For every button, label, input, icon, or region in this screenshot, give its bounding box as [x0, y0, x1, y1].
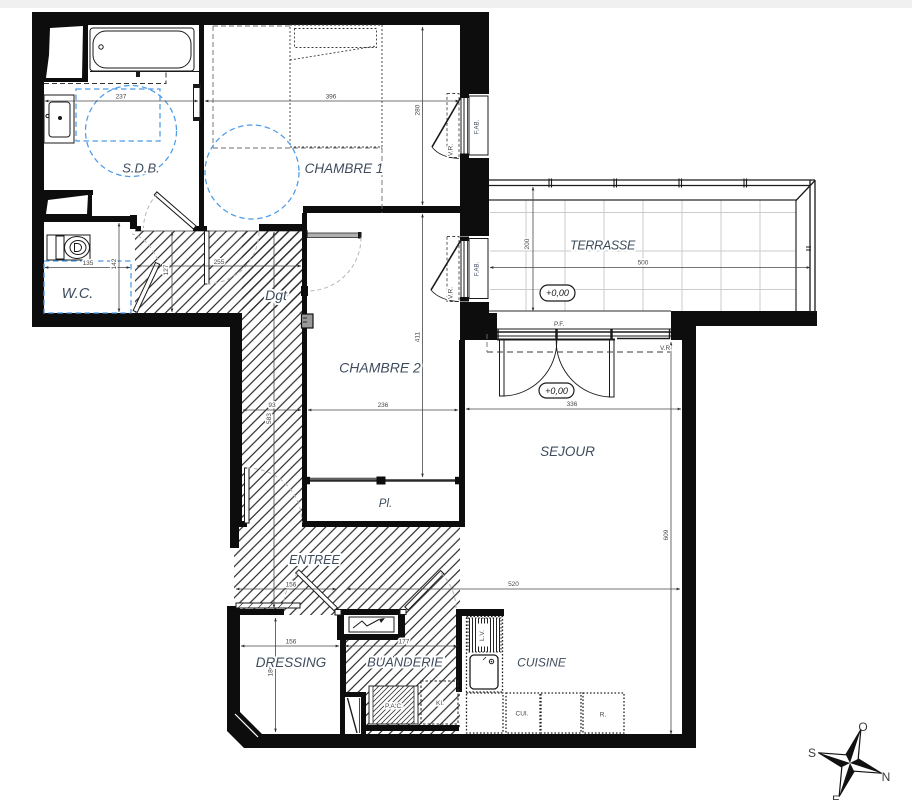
svg-text:S: S — [808, 746, 816, 760]
svg-text:500: 500 — [638, 260, 649, 267]
svg-text:SEJOUR: SEJOUR — [540, 444, 595, 459]
svg-text:411: 411 — [415, 331, 422, 342]
svg-text:142: 142 — [111, 258, 118, 269]
svg-text:P.A.C.: P.A.C. — [385, 703, 403, 710]
svg-text:127: 127 — [163, 264, 170, 275]
svg-text:L.V.: L.V. — [479, 630, 486, 641]
svg-text:583: 583 — [266, 413, 273, 424]
svg-text:O: O — [858, 720, 867, 734]
svg-text:Pl.: Pl. — [379, 498, 392, 510]
svg-text:KI.: KI. — [436, 700, 444, 707]
svg-text:F.AB.: F.AB. — [475, 262, 481, 277]
svg-text:DRESSING: DRESSING — [256, 655, 327, 670]
svg-text:135: 135 — [83, 260, 94, 267]
svg-text:156: 156 — [286, 582, 297, 589]
svg-text:CUI.: CUI. — [516, 711, 529, 718]
svg-text:156: 156 — [286, 639, 297, 646]
svg-text:F.AB.: F.AB. — [475, 120, 481, 135]
svg-text:V.R.: V.R. — [448, 287, 455, 299]
svg-text:V.R.: V.R. — [448, 144, 455, 156]
svg-text:CHAMBRE 1: CHAMBRE 1 — [305, 161, 384, 176]
svg-text:396: 396 — [326, 94, 337, 101]
svg-text:+0,00: +0,00 — [546, 288, 569, 298]
svg-text:E: E — [832, 793, 840, 800]
svg-text:R.: R. — [600, 712, 607, 719]
svg-text:N: N — [882, 770, 891, 784]
svg-text:ENTREE: ENTREE — [289, 553, 340, 567]
svg-text:S.D.B.: S.D.B. — [122, 161, 160, 176]
svg-text:BUANDERIE: BUANDERIE — [367, 655, 443, 670]
svg-text:P.F.: P.F. — [554, 321, 565, 328]
svg-text:237: 237 — [116, 94, 127, 101]
svg-text:93: 93 — [268, 402, 276, 409]
svg-text:V.R: V.R — [660, 345, 671, 352]
svg-text:W.C.: W.C. — [62, 286, 94, 302]
svg-text:CHAMBRE 2: CHAMBRE 2 — [339, 360, 421, 376]
svg-text:236: 236 — [378, 402, 389, 409]
svg-text:+0,00: +0,00 — [545, 386, 568, 396]
svg-text:Dgt: Dgt — [265, 287, 288, 303]
svg-text:CUISINE: CUISINE — [517, 656, 567, 670]
svg-text:200: 200 — [524, 238, 531, 249]
svg-text:609: 609 — [663, 529, 670, 540]
svg-text:177: 177 — [399, 639, 410, 646]
svg-text:TERRASSE: TERRASSE — [570, 239, 636, 253]
svg-text:280: 280 — [415, 104, 422, 115]
svg-text:520: 520 — [508, 581, 519, 588]
svg-text:255: 255 — [214, 259, 225, 266]
svg-text:336: 336 — [567, 401, 578, 408]
